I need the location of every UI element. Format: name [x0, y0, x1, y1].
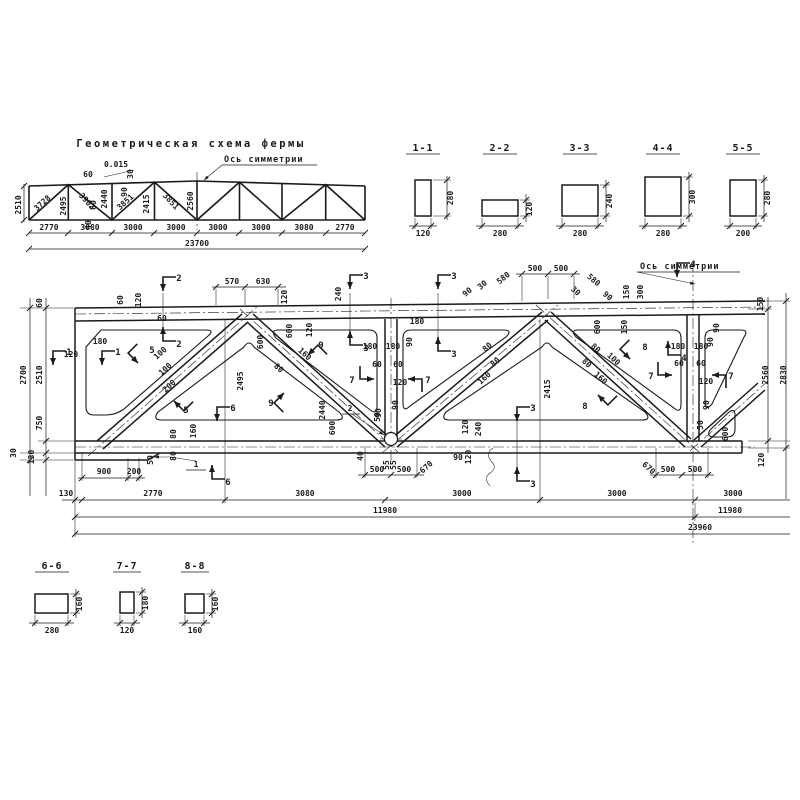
svg-text:50: 50: [696, 420, 705, 430]
svg-text:670: 670: [418, 459, 435, 475]
svg-text:180: 180: [410, 317, 425, 326]
svg-text:90: 90: [405, 337, 414, 347]
svg-text:11980: 11980: [718, 506, 742, 515]
section-height: 160: [75, 597, 84, 612]
svg-text:90: 90: [120, 187, 129, 197]
svg-text:600: 600: [256, 335, 265, 350]
section-width: 280: [45, 626, 60, 635]
section-title: 1-1: [412, 143, 433, 154]
svg-text:55: 55: [389, 460, 398, 470]
svg-text:2770: 2770: [39, 223, 58, 232]
truss-geometric-scheme: Геометрическая схема фермы Ось симметрии…: [15, 136, 399, 264]
svg-text:2510: 2510: [35, 365, 44, 384]
svg-text:500: 500: [528, 264, 543, 273]
svg-text:0.015: 0.015: [104, 160, 128, 169]
section-title: 5-5: [732, 143, 753, 154]
svg-text:6: 6: [230, 404, 235, 414]
svg-text:130: 130: [27, 450, 36, 465]
svg-text:2770: 2770: [143, 489, 162, 498]
svg-text:2: 2: [348, 404, 353, 413]
section-width: 280: [573, 229, 588, 238]
svg-text:7: 7: [349, 376, 354, 386]
svg-text:23700: 23700: [185, 239, 209, 248]
svg-text:3000: 3000: [452, 489, 471, 498]
svg-text:60: 60: [157, 314, 167, 323]
svg-text:2: 2: [176, 274, 181, 284]
svg-text:2440: 2440: [100, 189, 109, 208]
svg-text:90: 90: [702, 400, 711, 410]
svg-text:2560: 2560: [186, 191, 195, 210]
svg-text:500: 500: [688, 465, 703, 474]
svg-text:600: 600: [328, 421, 337, 436]
svg-text:130: 130: [59, 489, 74, 498]
svg-text:240: 240: [334, 287, 343, 302]
section-title: 6-6: [41, 561, 62, 572]
section-block-7-7: 7-7 120 180: [113, 561, 150, 635]
svg-text:8: 8: [642, 343, 647, 353]
cross-sections-top: 1-1 120 280 2-2 280 120: [395, 138, 795, 250]
section-block-5-5: 5-5 200 280: [724, 143, 772, 238]
svg-text:1: 1: [66, 348, 71, 358]
section-title: 8-8: [184, 561, 205, 572]
svg-text:2495: 2495: [236, 371, 245, 390]
section-height: 300: [688, 190, 697, 205]
svg-text:150: 150: [622, 285, 631, 300]
svg-text:150: 150: [620, 320, 629, 335]
scheme-truss-outline: [29, 181, 365, 220]
section-height: 280: [446, 191, 455, 206]
svg-text:2415: 2415: [543, 379, 552, 398]
svg-text:7: 7: [728, 372, 733, 382]
section-block-8-8: 8-8 160 160: [179, 561, 220, 635]
section-title: 7-7: [116, 561, 137, 572]
svg-text:580: 580: [585, 272, 602, 288]
svg-text:1: 1: [115, 348, 120, 358]
svg-text:200: 200: [127, 467, 142, 476]
svg-text:300: 300: [636, 285, 645, 300]
svg-text:600: 600: [285, 324, 294, 339]
section-block-4-4: 4-4 280 300: [639, 143, 697, 238]
svg-text:500: 500: [661, 465, 676, 474]
drawing-sheet: Геометрическая схема фермы Ось симметрии…: [0, 0, 800, 800]
svg-text:4: 4: [681, 354, 687, 364]
svg-text:60: 60: [83, 170, 93, 179]
svg-text:120: 120: [699, 377, 714, 386]
svg-text:2495: 2495: [59, 196, 68, 215]
svg-text:30: 30: [569, 285, 582, 298]
svg-text:3000: 3000: [166, 223, 185, 232]
svg-text:3: 3: [451, 350, 456, 360]
svg-text:180: 180: [671, 342, 686, 351]
svg-text:580: 580: [495, 270, 512, 286]
svg-text:160: 160: [592, 370, 609, 386]
svg-text:8: 8: [582, 402, 587, 412]
svg-text:670: 670: [640, 460, 657, 476]
svg-text:2700: 2700: [19, 365, 28, 384]
svg-text:180: 180: [93, 337, 108, 346]
svg-text:240: 240: [474, 422, 483, 437]
svg-text:23960: 23960: [688, 523, 712, 532]
section-height: 280: [763, 191, 772, 206]
svg-text:60: 60: [393, 360, 403, 369]
svg-text:80: 80: [481, 340, 494, 353]
svg-text:3: 3: [530, 480, 535, 490]
section-height: 240: [605, 194, 614, 209]
svg-text:600: 600: [721, 427, 730, 442]
section-height: 180: [141, 596, 150, 611]
svg-text:60: 60: [35, 298, 44, 308]
svg-text:570: 570: [225, 277, 240, 286]
section-title: 3-3: [569, 143, 590, 154]
svg-text:6: 6: [225, 478, 230, 488]
svg-text:7: 7: [425, 376, 430, 386]
section-width: 280: [656, 229, 671, 238]
section-width: 160: [188, 626, 203, 635]
section-block-2-2: 2-2 280 120: [476, 143, 534, 238]
svg-text:40: 40: [356, 451, 365, 461]
section-width: 280: [493, 229, 508, 238]
svg-text:120: 120: [134, 293, 143, 308]
section-title: 2-2: [489, 143, 510, 154]
svg-text:3000: 3000: [723, 489, 742, 498]
svg-text:3851: 3851: [161, 191, 181, 211]
svg-text:160: 160: [476, 370, 493, 386]
svg-text:90: 90: [453, 453, 463, 462]
svg-text:3080: 3080: [295, 489, 314, 498]
svg-text:80: 80: [169, 451, 178, 461]
svg-text:50: 50: [146, 455, 155, 465]
node-hole: [385, 433, 398, 446]
section-title: 4-4: [652, 143, 673, 154]
svg-text:120: 120: [757, 453, 766, 468]
svg-text:80: 80: [489, 355, 502, 368]
svg-text:3728: 3728: [32, 193, 52, 213]
scheme-symmetry-label: Ось симметрии: [224, 155, 304, 165]
svg-text:3: 3: [363, 344, 368, 354]
svg-text:7: 7: [648, 372, 653, 382]
svg-text:180: 180: [386, 342, 401, 351]
svg-text:600: 600: [593, 320, 602, 335]
svg-text:3080: 3080: [80, 223, 99, 232]
svg-text:120: 120: [393, 378, 408, 387]
svg-text:630: 630: [256, 277, 271, 286]
svg-text:5: 5: [149, 346, 154, 356]
svg-text:90: 90: [391, 400, 400, 410]
svg-text:3000: 3000: [208, 223, 227, 232]
section-block-1-1: 1-1 120 280: [406, 143, 455, 238]
svg-text:2560: 2560: [761, 365, 770, 384]
svg-text:80: 80: [169, 429, 178, 439]
svg-text:4: 4: [690, 260, 696, 270]
svg-text:150: 150: [756, 297, 765, 312]
section-height: 120: [525, 202, 534, 217]
svg-text:80: 80: [589, 342, 602, 355]
svg-text:9: 9: [318, 341, 323, 351]
svg-text:3: 3: [363, 272, 368, 282]
svg-text:120: 120: [461, 420, 470, 435]
svg-text:80: 80: [272, 362, 285, 375]
svg-text:60: 60: [89, 200, 98, 210]
svg-text:3000: 3000: [251, 223, 270, 232]
section-height: 160: [211, 597, 220, 612]
truss-elevation: Ось симметрии 57063050050058090305803090…: [0, 253, 800, 553]
svg-text:3000: 3000: [607, 489, 626, 498]
section-width: 200: [736, 229, 751, 238]
svg-text:60: 60: [116, 295, 125, 305]
section-block-6-6: 6-6 280 160: [29, 561, 84, 635]
section-block-3-3: 3-3 280 240: [556, 143, 614, 238]
svg-text:200: 200: [161, 378, 178, 394]
svg-text:120: 120: [305, 323, 314, 338]
svg-text:120: 120: [464, 450, 473, 465]
svg-text:750: 750: [35, 416, 44, 431]
svg-text:2510: 2510: [15, 195, 23, 214]
svg-text:90: 90: [374, 408, 383, 418]
svg-text:3000: 3000: [123, 223, 142, 232]
svg-text:90: 90: [461, 285, 474, 298]
svg-text:2415: 2415: [142, 194, 151, 213]
cross-sections-bottom: 6-6 280 160 7-7 120 180: [25, 556, 275, 656]
svg-text:120: 120: [280, 290, 289, 305]
svg-text:2440: 2440: [318, 400, 327, 419]
svg-text:2830: 2830: [779, 365, 788, 384]
svg-text:30: 30: [126, 169, 135, 179]
svg-text:2: 2: [176, 340, 181, 350]
section-width: 120: [416, 229, 431, 238]
svg-text:5: 5: [183, 406, 188, 416]
svg-text:90: 90: [601, 290, 614, 303]
svg-text:900: 900: [97, 467, 112, 476]
section-width: 120: [120, 626, 135, 635]
scheme-title: Геометрическая схема фермы: [76, 138, 305, 150]
svg-text:30: 30: [476, 278, 489, 291]
svg-text:90: 90: [712, 323, 721, 333]
svg-text:1: 1: [194, 460, 199, 469]
svg-text:60: 60: [696, 359, 706, 368]
svg-text:3080: 3080: [294, 223, 313, 232]
svg-text:2770: 2770: [335, 223, 354, 232]
svg-text:500: 500: [554, 264, 569, 273]
svg-text:160: 160: [189, 424, 198, 439]
svg-text:30: 30: [9, 448, 18, 458]
svg-text:100: 100: [605, 351, 622, 367]
svg-text:500: 500: [397, 465, 412, 474]
svg-text:11980: 11980: [373, 506, 397, 515]
svg-text:90: 90: [706, 337, 715, 347]
svg-text:60: 60: [372, 360, 382, 369]
svg-text:100: 100: [157, 361, 174, 377]
svg-text:3: 3: [451, 272, 456, 282]
svg-text:3: 3: [530, 404, 535, 414]
svg-text:9: 9: [268, 399, 273, 409]
